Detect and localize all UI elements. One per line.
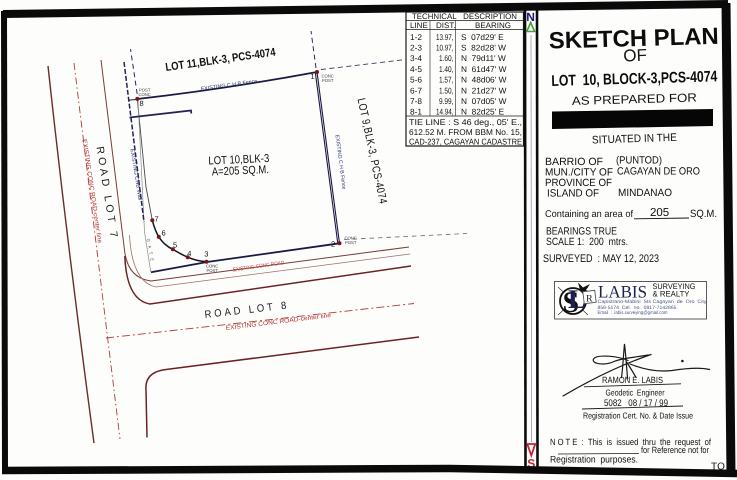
svg-text:POST: POST — [322, 78, 334, 83]
svg-text:2: 2 — [331, 240, 335, 249]
svg-text:Containing an area of: Containing an area of — [545, 209, 633, 220]
svg-text:4-5: 4-5 — [410, 64, 422, 74]
svg-text:N 82d25' E: N 82d25' E — [461, 107, 505, 117]
svg-text:8-1: 8-1 — [410, 107, 422, 117]
svg-text:Email : labis.surveying@gmai: Email : labis.surveying@gmail.com — [598, 310, 668, 316]
svg-text:N 21d27' W: N 21d27' W — [461, 85, 507, 95]
svg-text:A=205 SQ.M.: A=205 SQ.M. — [212, 164, 269, 178]
svg-text:RAMON E. LABIS: RAMON E. LABIS — [602, 375, 663, 385]
svg-text:TIE LINE : S 46 deg., 05' E.,: TIE LINE : S 46 deg., 05' E., — [409, 117, 522, 127]
svg-text:R: R — [586, 294, 593, 305]
svg-text:& REALTY: & REALTY — [653, 290, 691, 299]
svg-text:5-6: 5-6 — [410, 75, 422, 85]
svg-text:N 48d06' W: N 48d06' W — [461, 75, 507, 85]
svg-text:205: 205 — [650, 207, 669, 219]
svg-text:Registration Cert. No. & Date: Registration Cert. No. & Date Issue — [583, 411, 693, 421]
svg-text:POST: POST — [207, 268, 219, 273]
svg-text:LABIS: LABIS — [598, 282, 647, 302]
svg-text:BEARING: BEARING — [475, 21, 511, 30]
svg-text:S 82d28' W: S 82d28' W — [461, 43, 506, 53]
svg-text:612.52 M. FROM BBM No. 15,: 612.52 M. FROM BBM No. 15, — [409, 127, 522, 137]
svg-text:14.94,: 14.94, — [436, 107, 454, 117]
svg-text:10.97,: 10.97, — [436, 43, 454, 53]
svg-text:SQ.M.: SQ.M. — [690, 208, 717, 220]
svg-text:CONC: CONC — [139, 92, 151, 97]
svg-text:POST: POST — [345, 240, 357, 245]
svg-text:7-8: 7-8 — [410, 96, 422, 106]
svg-text:N 61d47' W: N 61d47' W — [461, 64, 507, 74]
svg-text:TECHNICAL DESCRIPTION: TECHNICAL DESCRIPTION — [412, 12, 517, 21]
svg-text:3: 3 — [204, 250, 208, 259]
svg-text:6-7: 6-7 — [410, 85, 422, 95]
svg-text:Registration purposes.: Registration purposes. — [550, 455, 638, 466]
svg-text:CAD-237, CAGAYAN CADASTRE: CAD-237, CAGAYAN CADASTRE — [409, 137, 522, 147]
svg-text:SCALE 1: 200 mtrs.: SCALE 1: 200 mtrs. — [546, 236, 628, 248]
svg-text:MINDANAO: MINDANAO — [618, 187, 672, 199]
svg-text:for Reference not for: for Reference not for — [641, 445, 709, 455]
svg-text:9.99,: 9.99, — [439, 96, 454, 106]
svg-text:8: 8 — [140, 99, 144, 108]
svg-text:1.60,: 1.60, — [439, 53, 454, 63]
svg-text:S 07d29' E: S 07d29' E — [461, 32, 504, 42]
svg-text:LINE: LINE — [410, 21, 428, 30]
svg-text:2-3: 2-3 — [410, 43, 422, 53]
svg-text:6: 6 — [162, 229, 166, 238]
svg-text:Geodetic Engineer: Geodetic Engineer — [606, 387, 665, 397]
svg-text:1.50,: 1.50, — [439, 85, 454, 95]
svg-text:1.57,: 1.57, — [439, 75, 454, 85]
svg-text:3-4: 3-4 — [410, 53, 422, 63]
svg-text:N 07d05' W: N 07d05' W — [461, 96, 507, 106]
svg-text:1-2: 1-2 — [410, 32, 422, 42]
svg-text:13.97,: 13.97, — [436, 32, 454, 42]
svg-text:Capistrano-Mabini Sts Cagayan: Capistrano-Mabini Sts Cagayan de Oro Cit… — [598, 299, 708, 305]
svg-text:1: 1 — [311, 72, 315, 81]
svg-text:856-5174 Cel. no. 0917-7142: 856-5174 Cel. no. 0917-7142865 — [598, 305, 677, 311]
svg-text:DIST.: DIST. — [436, 21, 456, 30]
svg-text:1.40,: 1.40, — [439, 64, 454, 74]
svg-text:ISLAND OF: ISLAND OF — [547, 188, 599, 200]
svg-text:OF: OF — [623, 46, 647, 66]
svg-text:SURVEYED : MAY 12, 2023: SURVEYED : MAY 12, 2023 — [543, 253, 659, 265]
svg-text:CAGAYAN DE ORO: CAGAYAN DE ORO — [617, 165, 700, 177]
svg-text:N 79d11' W: N 79d11' W — [461, 53, 506, 63]
svg-text:7: 7 — [155, 215, 159, 224]
